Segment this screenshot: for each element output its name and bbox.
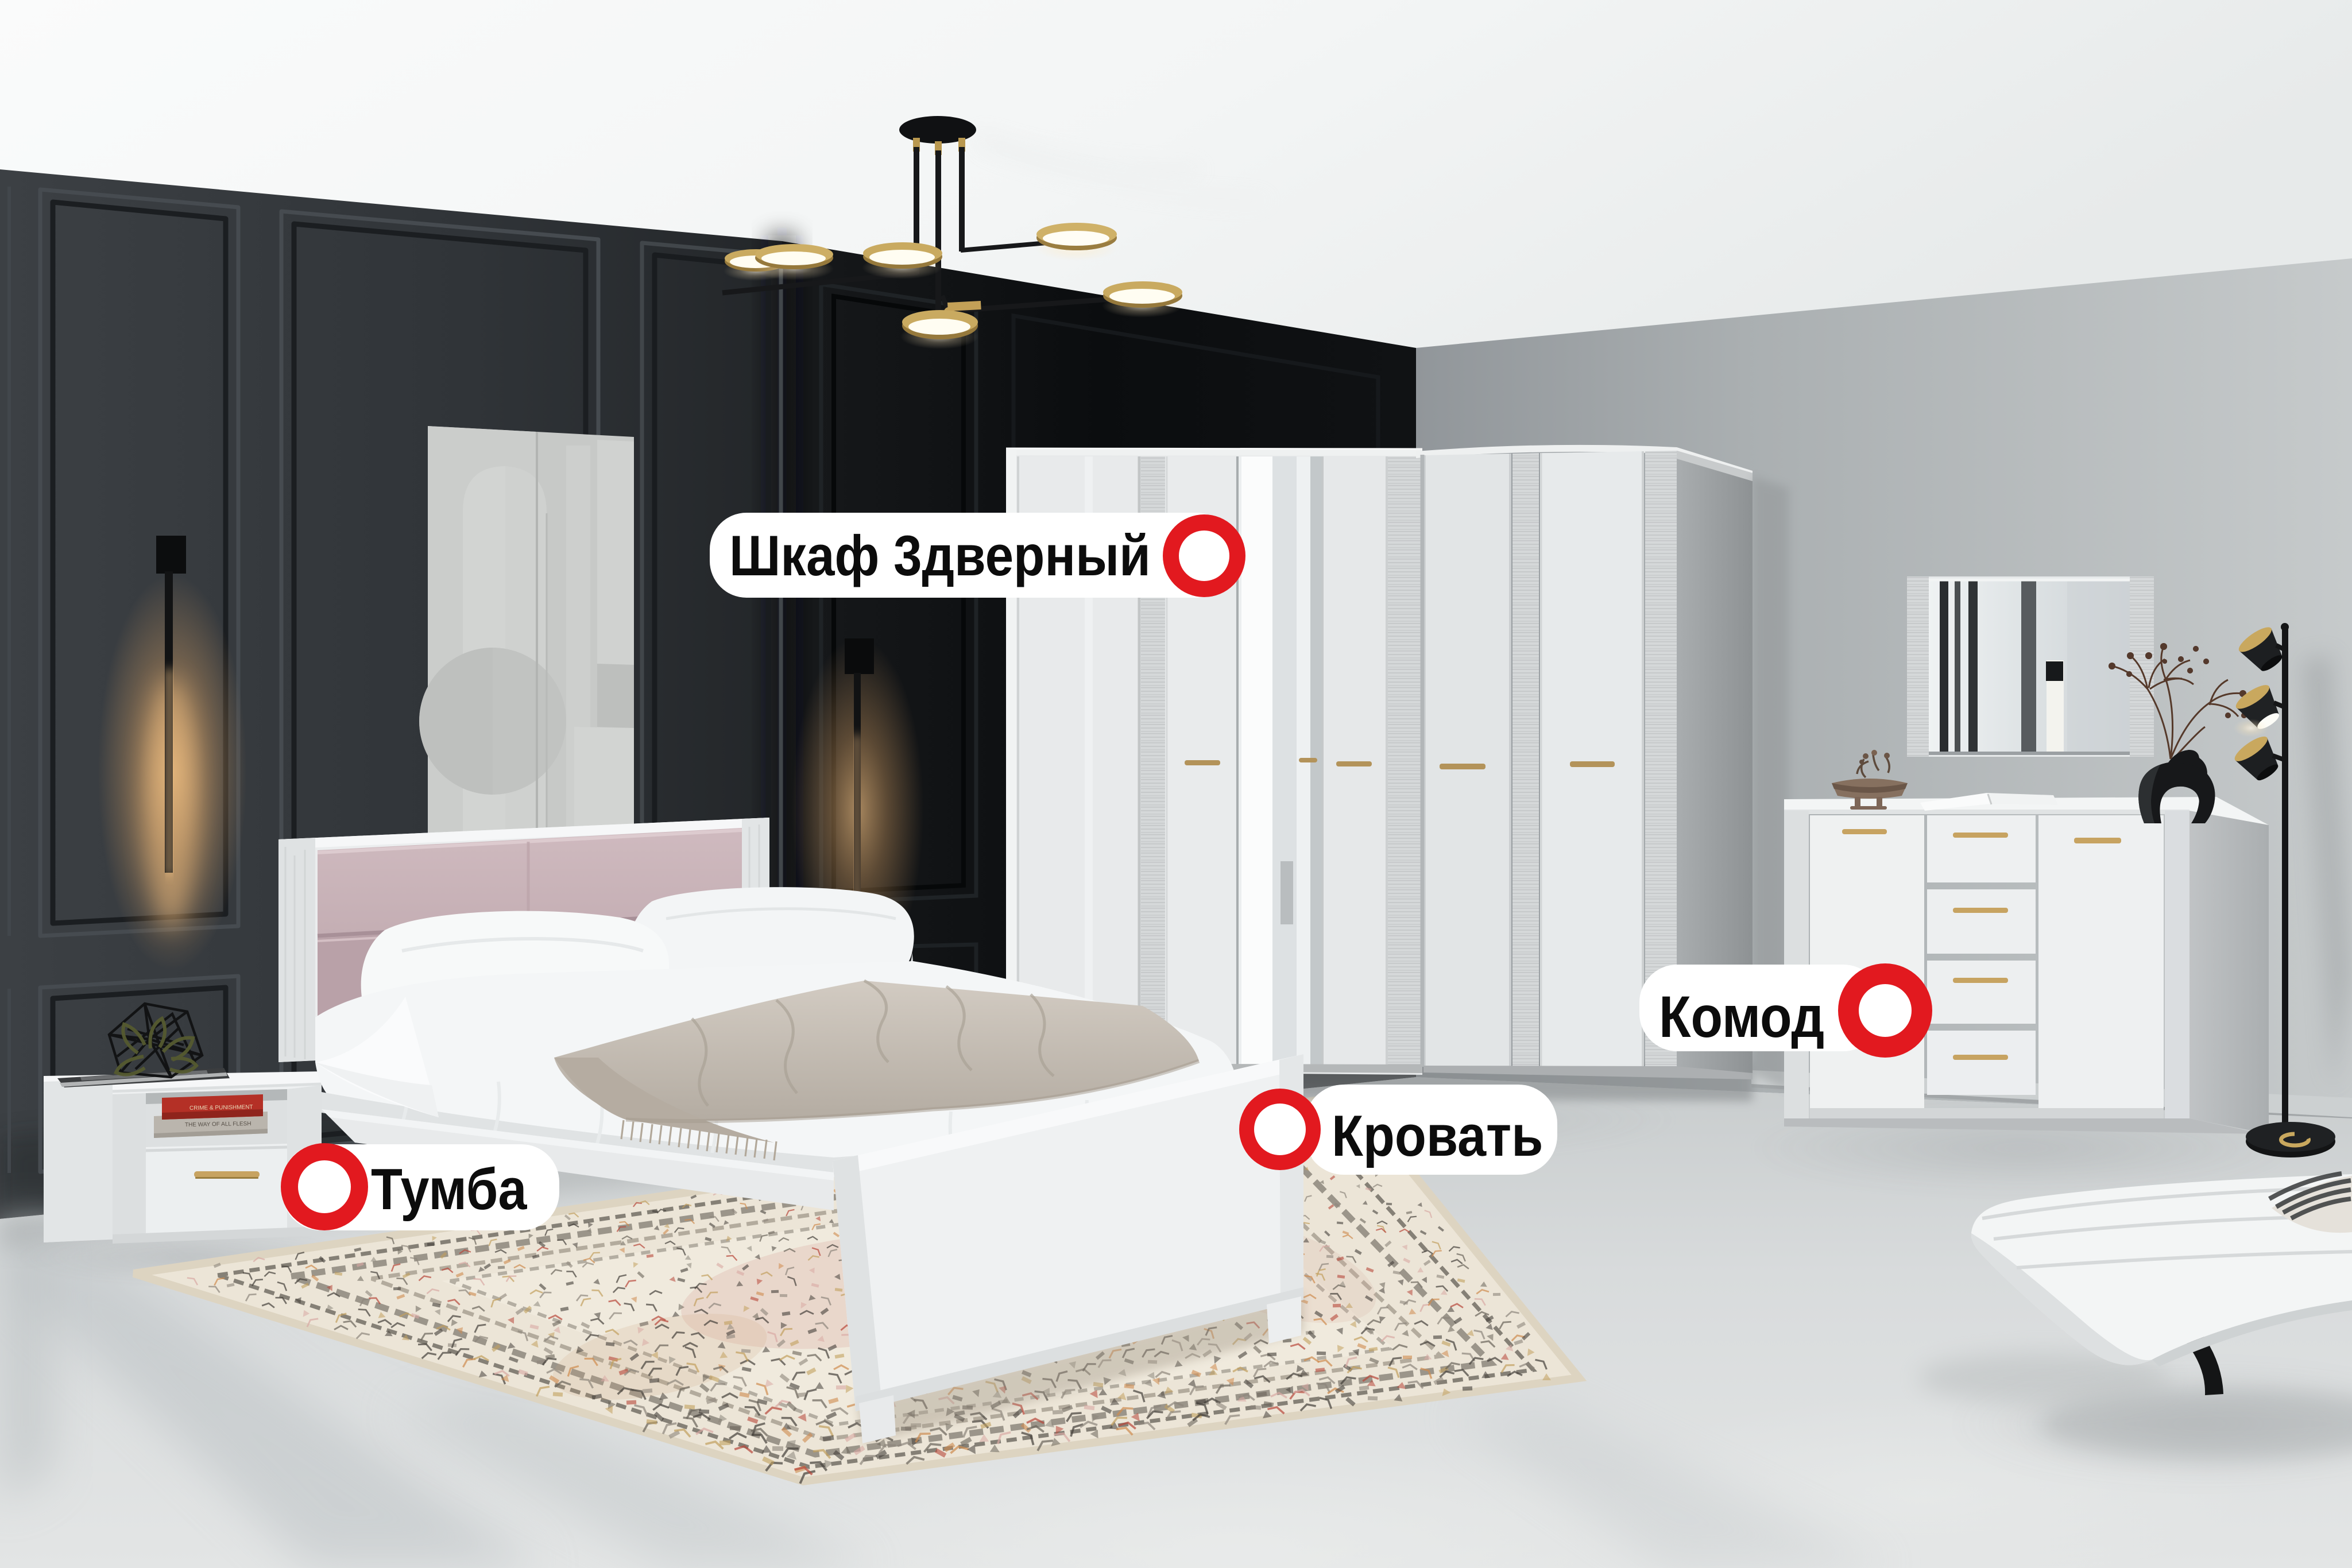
svg-text:CRIME & PUNISHMENT: CRIME & PUNISHMENT — [189, 1104, 253, 1112]
svg-text:Комод: Комод — [1659, 985, 1824, 1050]
svg-text:THE WAY OF ALL FLESH: THE WAY OF ALL FLESH — [185, 1121, 252, 1128]
svg-text:Тумба: Тумба — [371, 1157, 527, 1222]
svg-text:Кровать: Кровать — [1332, 1104, 1543, 1168]
svg-text:Шкаф 3дверный: Шкаф 3дверный — [729, 524, 1151, 588]
